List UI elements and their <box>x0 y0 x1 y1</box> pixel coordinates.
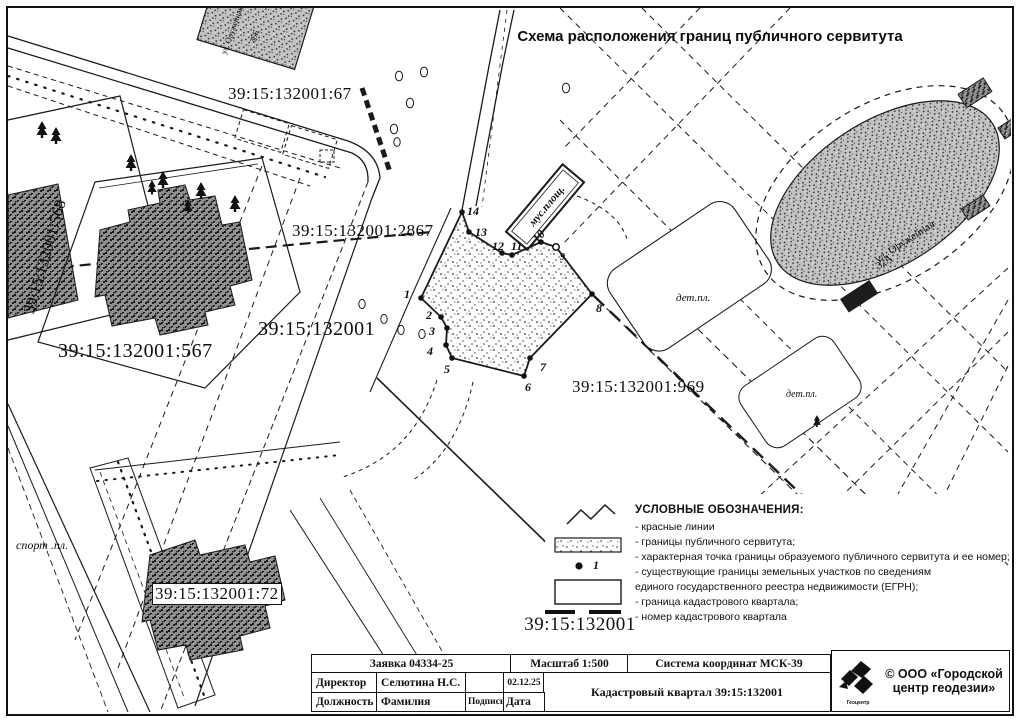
map-frame <box>6 6 1014 716</box>
cadastral-scheme-page: Схема расположения границ публичного сер… <box>0 0 1018 720</box>
